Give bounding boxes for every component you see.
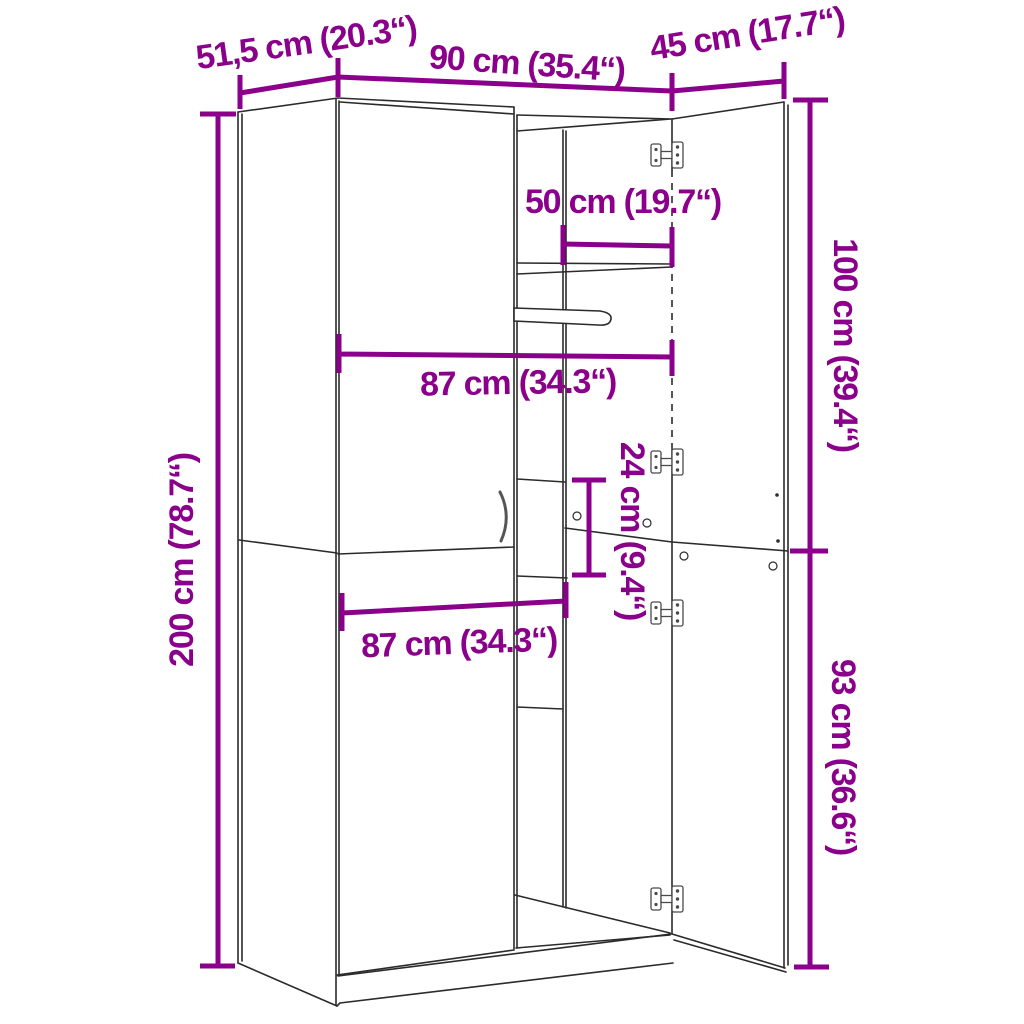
- wardrobe-diagram-canvas: 51,5 cm (20.3“) 90 cm (35.4“) 45 cm (17.…: [0, 0, 1024, 1024]
- dim-label-cubby-height: 24 cm (9.4“): [613, 442, 651, 620]
- dim-label-lower-section-height: 93 cm (36.6“): [824, 659, 862, 855]
- dim-label-interior-width-lower: 87 cm (34.3“): [360, 620, 557, 665]
- fitting-hole: [573, 512, 581, 520]
- open-right-door: [565, 102, 788, 972]
- door-handle: [500, 492, 506, 541]
- fitting-hole: [769, 562, 777, 570]
- fitting-hole: [680, 552, 688, 560]
- hinge-icon: [651, 449, 683, 475]
- hinge-icon: [651, 886, 683, 912]
- dim-label-interior-width-upper: 87 cm (34.3“): [420, 362, 617, 403]
- dim-label-depth: 51,5 cm (20.3“): [194, 9, 419, 78]
- dimension-diagram: 51,5 cm (20.3“) 90 cm (35.4“) 45 cm (17.…: [0, 0, 1024, 1024]
- dim-label-upper-section-height: 100 cm (39.4“): [826, 238, 864, 452]
- clothes-rail: [514, 308, 611, 325]
- dim-label-shelf-width: 50 cm (19.7“): [525, 183, 721, 221]
- hinge-icon: [651, 600, 683, 626]
- hinge-icon: [651, 142, 683, 168]
- dim-label-height: 200 cm (78.7“): [163, 453, 201, 667]
- dim-label-door-width: 45 cm (17.7“): [647, 0, 847, 68]
- wardrobe-outline: [238, 98, 673, 1006]
